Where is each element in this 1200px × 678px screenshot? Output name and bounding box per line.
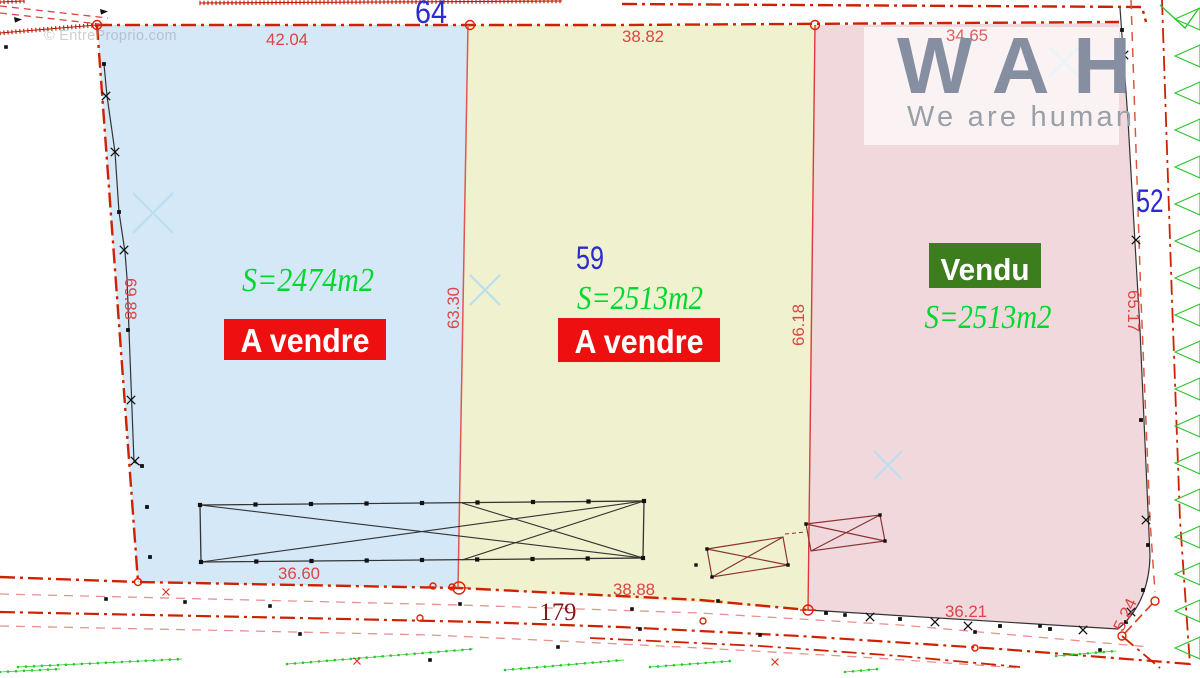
svg-text:65.17: 65.17: [1124, 290, 1142, 332]
svg-text:179: 179: [540, 599, 577, 626]
svg-text:59: 59: [576, 240, 604, 276]
svg-text:69.88: 69.88: [121, 278, 139, 320]
svg-text:66.18: 66.18: [790, 304, 808, 346]
svg-text:© EntreProprio.com: © EntreProprio.com: [44, 28, 177, 44]
svg-text:63.30: 63.30: [445, 287, 463, 329]
svg-text:S=2513m2: S=2513m2: [577, 280, 703, 317]
svg-text:We are human: We are human: [907, 101, 1132, 133]
svg-text:42.04: 42.04: [266, 31, 308, 49]
svg-text:A vendre: A vendre: [241, 322, 370, 359]
svg-text:WAH: WAH: [897, 21, 1131, 110]
svg-text:52: 52: [1137, 183, 1164, 219]
svg-text:38.88: 38.88: [613, 581, 655, 599]
svg-text:36.21: 36.21: [945, 603, 987, 621]
svg-text:S=2513m2: S=2513m2: [925, 299, 1052, 336]
svg-text:38.82: 38.82: [622, 28, 664, 46]
svg-text:64: 64: [415, 0, 447, 30]
svg-text:S=2474m2: S=2474m2: [242, 262, 374, 299]
svg-text:A vendre: A vendre: [575, 323, 704, 360]
svg-text:Vendu: Vendu: [941, 252, 1030, 287]
svg-text:36.60: 36.60: [278, 565, 320, 583]
